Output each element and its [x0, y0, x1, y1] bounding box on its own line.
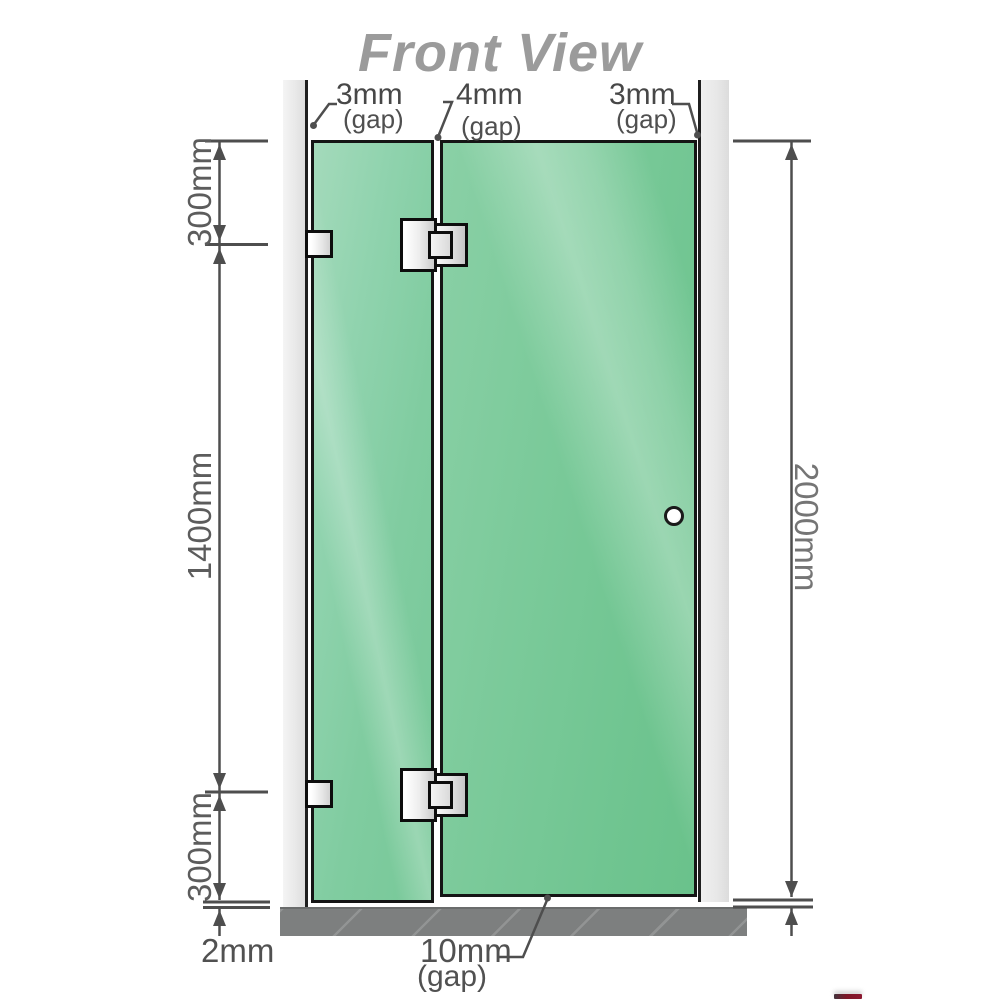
- front-view-diagram: Front View: [0, 0, 1000, 1000]
- diagram-title: Front View: [0, 22, 1000, 84]
- wall-channel-right: [698, 80, 729, 902]
- floor-base: [280, 907, 747, 936]
- partial-logo: [834, 994, 862, 999]
- dim-total-height-label: 2000mm: [789, 457, 823, 597]
- gap-label-middle-value: 4mm: [456, 80, 523, 110]
- door-handle-knob: [664, 506, 684, 526]
- dim-left-middle-label: 1400mm: [183, 446, 217, 586]
- gap-label-right-unit: (gap): [616, 106, 677, 132]
- glass-hinge-bottom: [400, 768, 468, 822]
- hinge-center-tab: [428, 231, 453, 259]
- dim-floor-gap-label: 2mm: [201, 934, 274, 967]
- wall-bracket-top: [305, 230, 333, 258]
- door-glass-panel: [440, 140, 697, 897]
- gap-label-bottom-unit: (gap): [417, 962, 487, 992]
- dim-left-bottom-label: 300mm: [183, 777, 217, 917]
- glass-hinge-top: [400, 218, 468, 272]
- gap-label-middle-unit: (gap): [461, 113, 522, 139]
- gap-label-left-unit: (gap): [343, 106, 404, 132]
- dim-left-top-label: 300mm: [183, 122, 217, 262]
- wall-bracket-bottom: [305, 780, 333, 808]
- hinge-center-tab: [428, 781, 453, 809]
